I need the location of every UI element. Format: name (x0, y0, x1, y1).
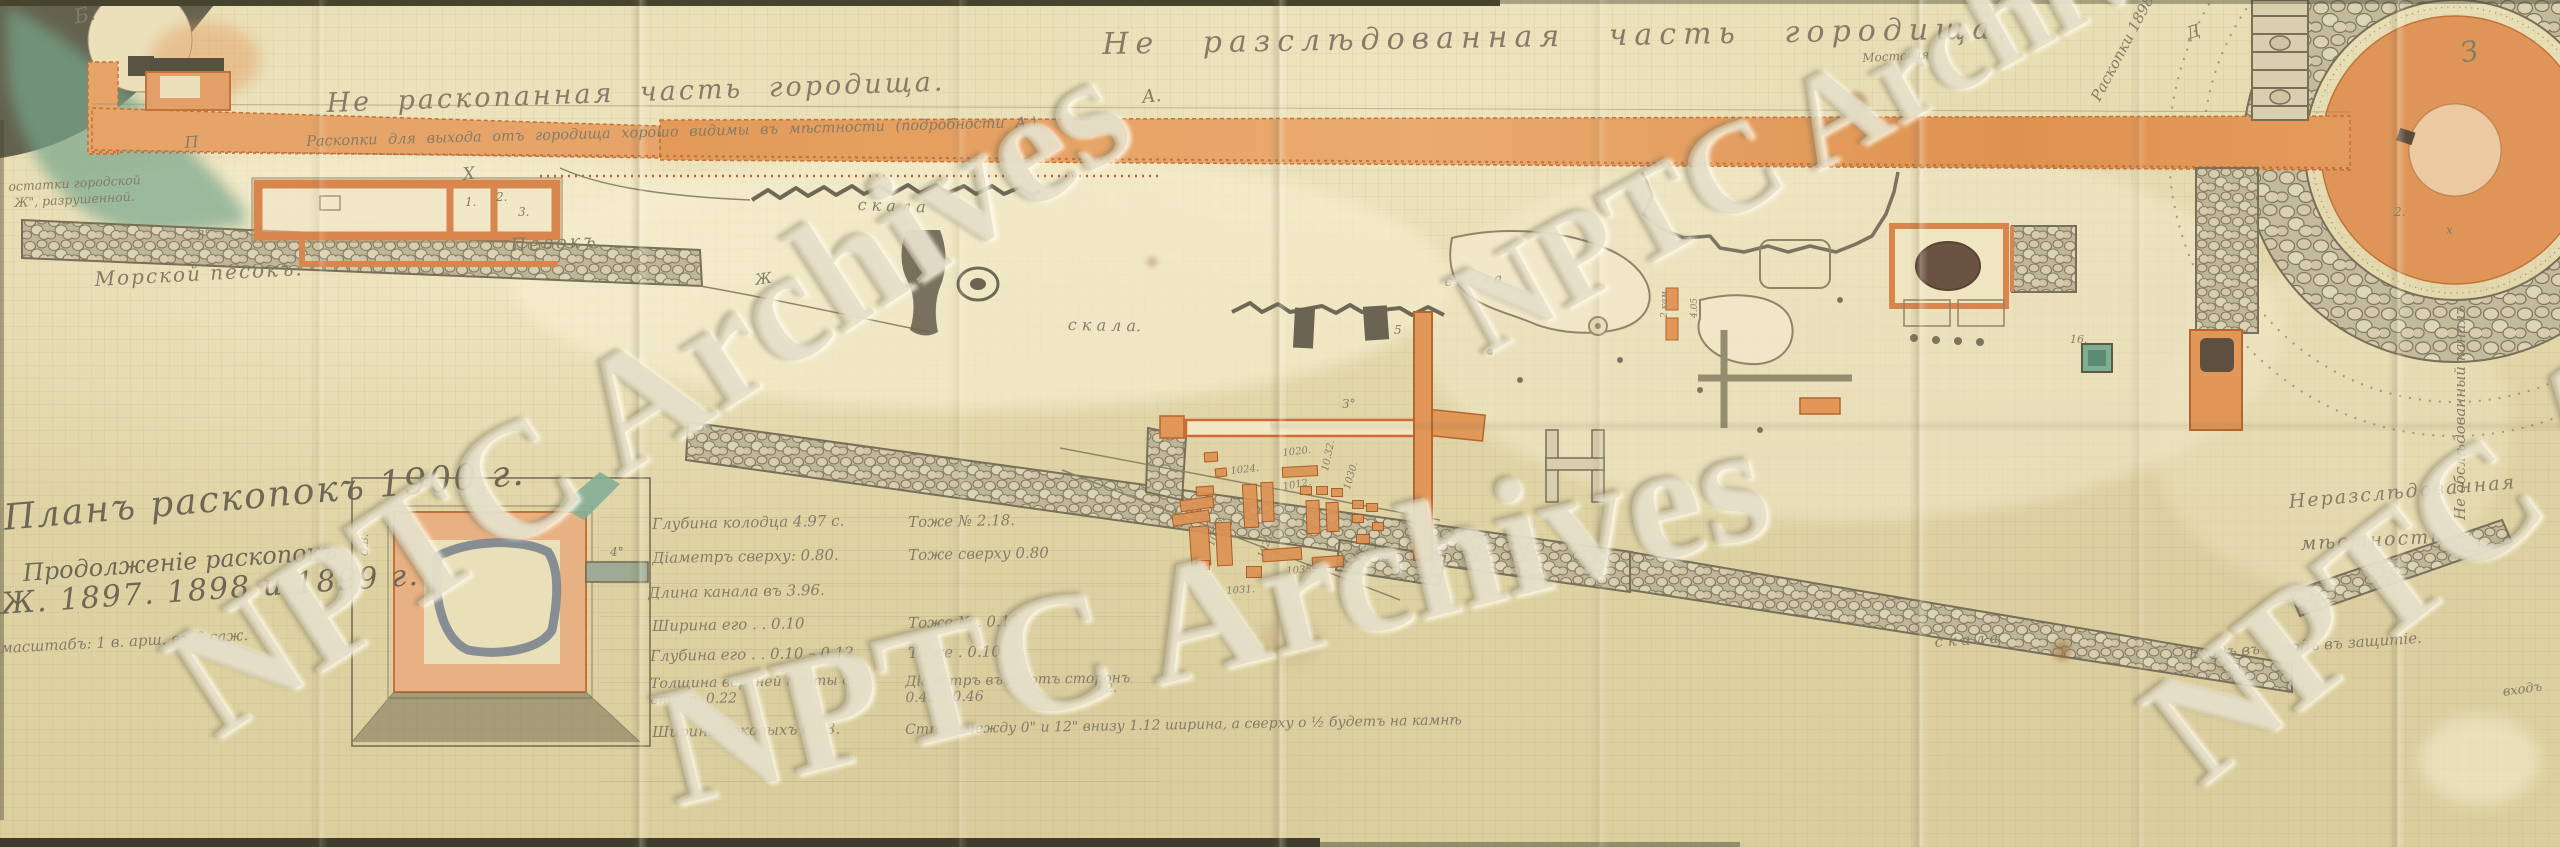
round-tower (2169, 0, 2560, 436)
find-marker (1262, 547, 1303, 563)
measure-left-2: Діаметръ сверху: 0.80. (652, 547, 839, 568)
find-marker (1179, 496, 1214, 513)
right-area-label-1: Неразслѣдованная (2288, 472, 2517, 514)
title-top-left: Не раскопанная часть городища. (326, 66, 946, 119)
map-label: 2 кам. (1660, 288, 1670, 318)
legend-scale: масштабъ: 1 в. арш. въ 6 саж. (0, 627, 249, 657)
find-marker (1325, 502, 1339, 532)
subtitle-top-left: Раскопки для выхода отъ городища хорошо … (306, 115, 1037, 151)
legend-title: Планъ раскопокъ 1900 г. (2, 452, 527, 539)
find-marker (1372, 522, 1384, 531)
map-label: Морской песокъ. (94, 257, 304, 291)
map-label: З (2458, 35, 2481, 70)
map-label: 4.05 (1690, 298, 1700, 318)
map-label: 3. (518, 206, 529, 220)
measure-left-5: Глубина его . . 0.10 – 0.12 (650, 644, 854, 665)
raskopki-1898-label: Раскопки 1898 г. (2088, 0, 2166, 104)
measure-right-6: Стѣна между 0" и 12" внизу 1.12 ширина, … (905, 712, 1462, 738)
map-label: О.В. (360, 534, 372, 556)
find-marker (1204, 452, 1219, 463)
pit-blobs (901, 230, 1389, 348)
map-label: 1031. (1226, 584, 1255, 597)
map-label: 1020. (1282, 445, 1312, 459)
measure-right-3: Тоже № . 0.13 (908, 613, 1020, 632)
measure-right-1: Тоже № 2.18. (908, 512, 1015, 531)
map-label: 10.32. (1320, 439, 1338, 473)
map-label: 1035. (1286, 564, 1315, 577)
map-label: Песокъ (510, 231, 599, 256)
fold-crease (1910, 0, 1928, 847)
map-label: А. (1141, 86, 1162, 109)
map-label: Х (462, 165, 476, 186)
map-label: с к а л а (1934, 630, 1999, 652)
find-marker (1260, 482, 1274, 522)
orange-slab (2190, 330, 2242, 430)
archive-watermark: NPTC Archives (1430, 0, 2252, 376)
measure-right-2: Тоже сверху 0.80 (908, 545, 1049, 565)
fold-crease (1590, 0, 1608, 847)
map-label: 2. (496, 191, 507, 205)
find-marker (1300, 486, 1312, 495)
survey-dots (1487, 297, 1984, 433)
excavation-plan-scan: Не разслѣдованная часть городища. Не рас… (0, 0, 2560, 847)
measure-left-7: Ширина боковыхъ 0.13. (652, 721, 840, 742)
map-label: 4° (610, 546, 624, 560)
measure-left-3: Длина канала въ 3.96. (648, 582, 825, 602)
map-label: скала (1444, 271, 1507, 290)
find-marker (1356, 534, 1370, 544)
fold-crease-horizontal (1270, 420, 2560, 432)
map-label: Ж (754, 270, 773, 289)
cross-walls (1546, 288, 1852, 502)
map-label: Б. (72, 2, 97, 29)
find-marker (1366, 503, 1378, 512)
archive-watermark: NPTC Archives (2115, 2, 2560, 810)
map-label: 16. (2070, 334, 2088, 347)
measure-left-1: Глубина колодца 4.97 с. (652, 513, 844, 534)
find-marker (1242, 484, 1259, 529)
map-label: 1030. (1342, 460, 1361, 491)
map-label: Д (2184, 22, 2203, 45)
measure-left-6: Толщина верхней плиты со створ. 0.22 (650, 672, 886, 708)
map-label: 1024. (1230, 463, 1260, 477)
find-marker (1352, 500, 1364, 509)
canal-label: Не обслѣдованный каналъ (2452, 305, 2469, 520)
find-marker (1312, 555, 1345, 569)
map-label: П (184, 133, 199, 152)
find-marker (1215, 467, 1228, 477)
main-wall-band (88, 62, 2350, 176)
battlement-wall (2252, 0, 2308, 120)
fold-crease (2388, 0, 2406, 847)
paper-stains (1147, 92, 2071, 662)
find-marker (1282, 465, 1319, 478)
map-label: х (2446, 224, 2453, 238)
green-cistern (2082, 344, 2112, 372)
find-marker (1215, 522, 1233, 567)
entrance-label: Входъ въ городъ въ защитіе. (2188, 630, 2422, 664)
map-label: З° (196, 229, 212, 245)
find-marker (1305, 500, 1320, 534)
fold-crease (310, 0, 328, 847)
map-label: З° (1342, 398, 1355, 412)
apse-room (1892, 226, 2012, 326)
gate-structure (128, 56, 230, 110)
map-label: α (476, 482, 486, 499)
map-label: 62. (1098, 682, 1117, 696)
entrance-label-2: входъ (2502, 680, 2543, 700)
map-label: Мостовая (1862, 48, 1930, 65)
excavation-outlines (1450, 231, 1830, 364)
find-marker (1246, 566, 1262, 578)
measure-right-4: Тоже . 0.10 (908, 643, 1001, 662)
cobblestone-walls (22, 168, 2512, 692)
find-marker (1331, 488, 1343, 497)
map-label: с к а л а. (1068, 316, 1142, 336)
map-label: с к а л а (857, 196, 926, 217)
fold-crease (2130, 0, 2148, 847)
find-marker (1352, 514, 1364, 523)
find-marker (1196, 560, 1210, 570)
measure-left-4: Ширина его . . 0.10 (652, 615, 805, 635)
inset-well-detail (352, 472, 650, 746)
map-label: 2. (2394, 206, 2405, 220)
map-label: 5 (1394, 324, 1402, 338)
map-label: 1. (465, 196, 476, 210)
right-area-label-2: мѣстность. (2300, 526, 2451, 556)
find-marker (1316, 486, 1328, 495)
